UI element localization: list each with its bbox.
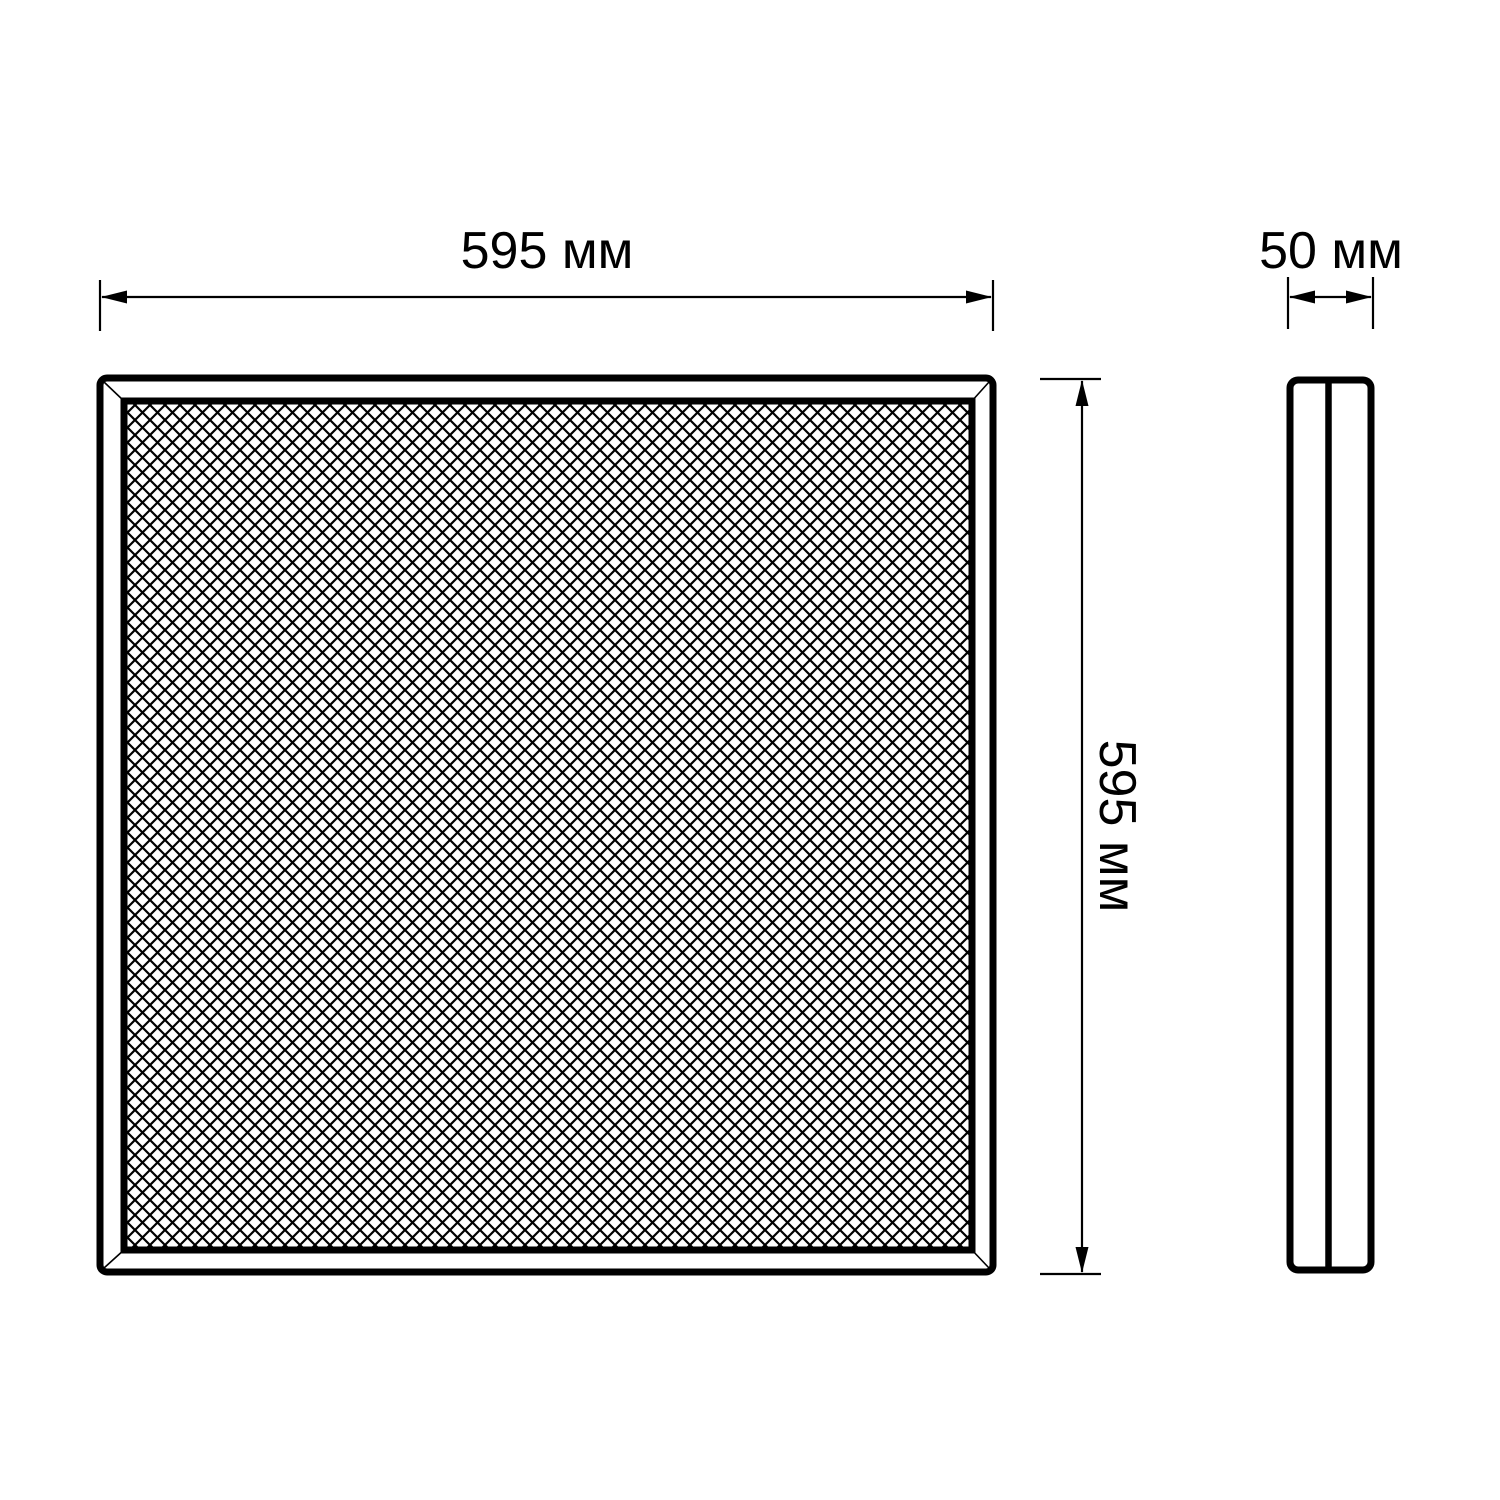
arrowhead-left-icon <box>101 291 127 304</box>
height-dimension-label: 595 мм <box>1088 740 1146 913</box>
width-dimension-label: 595 мм <box>461 222 634 280</box>
front-view <box>100 378 993 1272</box>
depth-dimension: 50 мм <box>1259 222 1403 329</box>
arrowhead-up-icon <box>1076 380 1089 406</box>
width-dimension: 595 мм <box>100 222 993 331</box>
arrowhead-down-icon <box>1076 1247 1089 1273</box>
arrowhead-right-icon <box>966 291 992 304</box>
panel-diffuser-grid <box>124 401 972 1250</box>
side-view <box>1290 380 1371 1270</box>
panel-dimension-drawing: 595 мм 595 мм 50 мм <box>0 0 1500 1500</box>
arrowhead-right-icon <box>1346 291 1372 304</box>
height-dimension: 595 мм <box>1040 379 1146 1274</box>
arrowhead-left-icon <box>1289 291 1315 304</box>
depth-dimension-label: 50 мм <box>1259 222 1403 280</box>
